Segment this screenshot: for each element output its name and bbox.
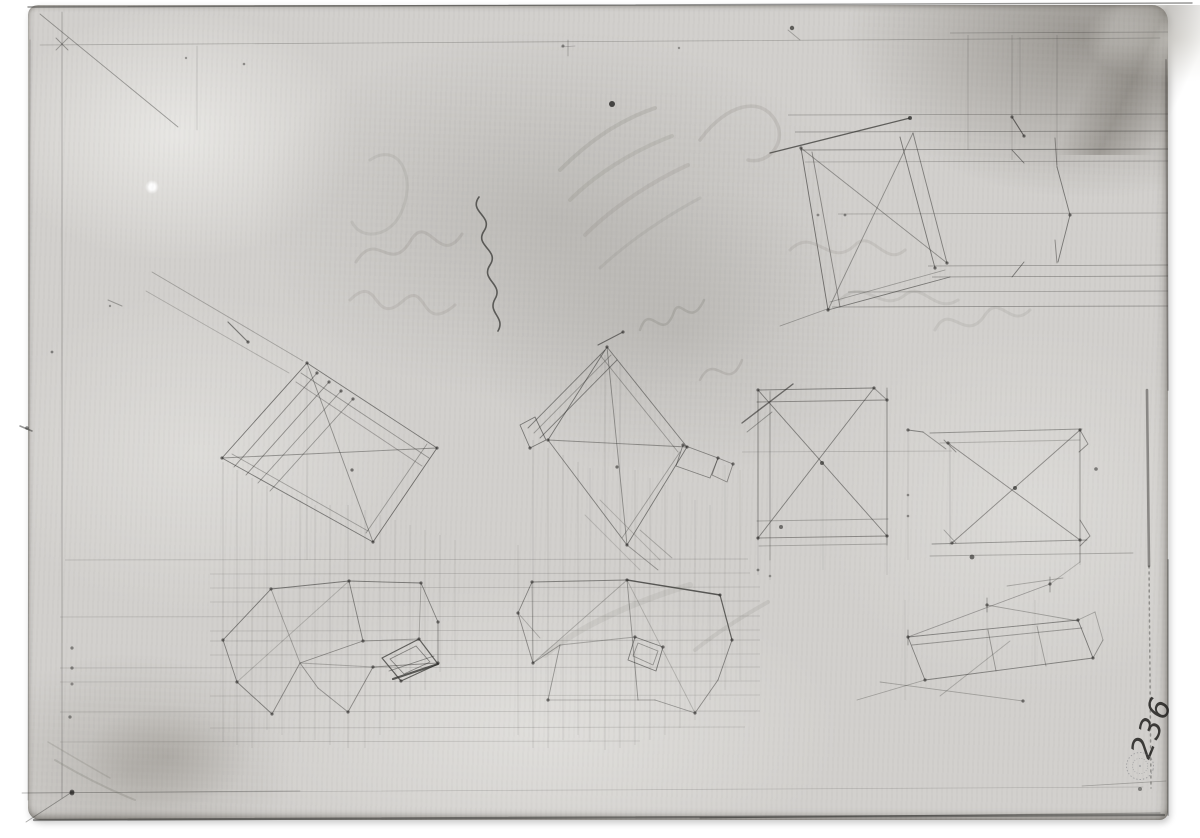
pencil-drawing-canvas xyxy=(0,0,1200,838)
figure-long-box-bottom-right xyxy=(857,562,1103,703)
scan-background: 236 xyxy=(0,0,1200,838)
figure-ink-specks xyxy=(20,26,1142,796)
figure-square-x-center-right xyxy=(742,384,946,577)
figure-charcoal-scribbles xyxy=(48,106,1030,800)
figure-square-x-right xyxy=(930,428,1133,562)
figure-construction-grid xyxy=(60,35,1080,750)
figure-perspective-box-top-right xyxy=(770,32,1168,326)
figure-twin-boxes-bottom-left xyxy=(221,579,439,715)
figure-margin-frame xyxy=(22,12,1166,822)
figure-rotated-frame-left xyxy=(146,272,439,544)
figure-rotated-square-center xyxy=(520,330,735,570)
stamp-center-dot xyxy=(1139,765,1142,768)
